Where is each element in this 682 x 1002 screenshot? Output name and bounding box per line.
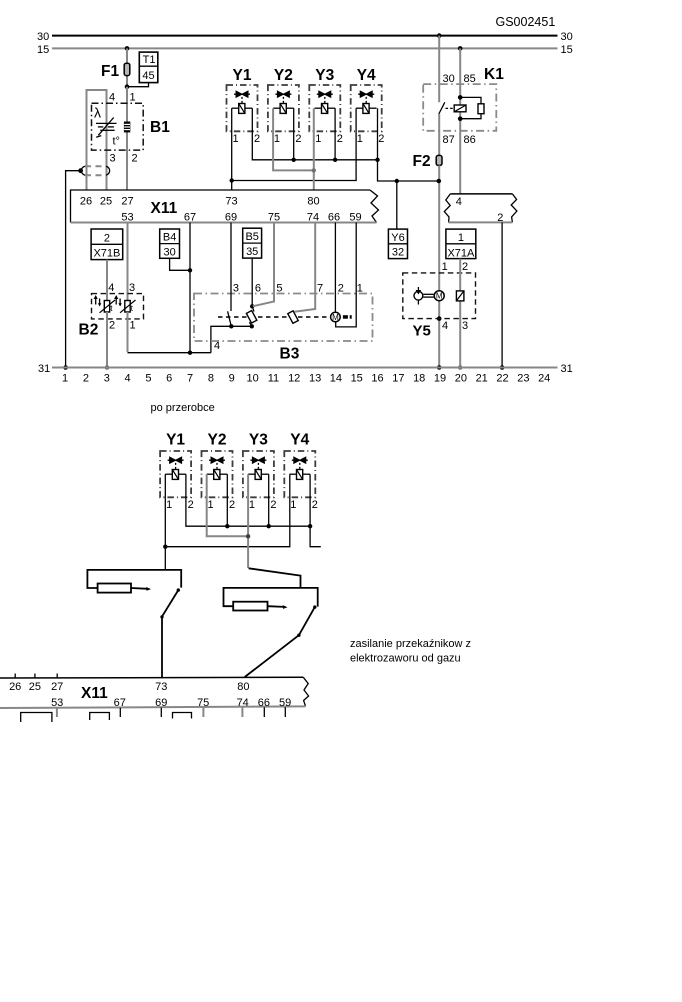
svg-text:1: 1 <box>274 133 280 145</box>
svg-text:6: 6 <box>166 373 172 385</box>
svg-text:1: 1 <box>208 499 214 511</box>
svg-text:X11: X11 <box>151 200 178 217</box>
svg-text:F1: F1 <box>101 63 119 80</box>
svg-text:80: 80 <box>307 196 319 208</box>
svg-text:1: 1 <box>315 133 321 145</box>
svg-text:t°: t° <box>113 136 120 148</box>
svg-text:B5: B5 <box>245 231 258 243</box>
svg-text:30: 30 <box>163 246 175 258</box>
svg-text:Y1: Y1 <box>233 67 252 84</box>
svg-text:67: 67 <box>184 212 196 224</box>
svg-text:2: 2 <box>229 499 235 511</box>
svg-text:Y1: Y1 <box>166 432 185 449</box>
svg-text:45: 45 <box>142 70 154 82</box>
svg-text:8: 8 <box>208 373 214 385</box>
svg-text:9: 9 <box>229 373 235 385</box>
svg-text:26: 26 <box>9 681 21 693</box>
svg-text:19: 19 <box>434 373 446 385</box>
svg-text:3: 3 <box>462 320 468 332</box>
svg-text:17: 17 <box>392 373 404 385</box>
svg-text:11: 11 <box>268 373 279 385</box>
svg-text:elektrozaworu od gazu: elektrozaworu od gazu <box>350 653 461 665</box>
svg-text:1: 1 <box>458 232 464 244</box>
svg-text:27: 27 <box>51 681 63 693</box>
svg-text:B3: B3 <box>280 346 300 363</box>
svg-text:16: 16 <box>371 373 383 385</box>
svg-text:2: 2 <box>497 212 503 224</box>
svg-text:12: 12 <box>288 373 300 385</box>
svg-text:2: 2 <box>338 283 344 295</box>
svg-text:75: 75 <box>197 697 209 709</box>
svg-text:2: 2 <box>295 133 301 145</box>
svg-text:27: 27 <box>121 196 133 208</box>
svg-text:λ: λ <box>94 105 101 121</box>
svg-text:4: 4 <box>109 92 115 104</box>
svg-text:2: 2 <box>83 373 89 385</box>
svg-text:59: 59 <box>349 212 361 224</box>
svg-text:23: 23 <box>517 373 529 385</box>
svg-text:T1: T1 <box>143 54 156 66</box>
svg-text:B1: B1 <box>150 119 170 136</box>
svg-text:5: 5 <box>276 283 282 295</box>
svg-text:3: 3 <box>110 153 116 165</box>
svg-text:35: 35 <box>246 246 258 258</box>
svg-text:1: 1 <box>233 133 239 145</box>
svg-text:2: 2 <box>109 320 115 332</box>
svg-text:4: 4 <box>456 196 462 208</box>
svg-text:Y2: Y2 <box>274 67 293 84</box>
svg-text:Y4: Y4 <box>290 432 309 449</box>
svg-text:4: 4 <box>442 320 448 332</box>
svg-text:30: 30 <box>37 31 49 43</box>
svg-text:24: 24 <box>538 373 550 385</box>
svg-text:53: 53 <box>51 697 63 709</box>
svg-text:66: 66 <box>328 212 340 224</box>
svg-text:15: 15 <box>561 44 573 56</box>
svg-text:30: 30 <box>443 73 455 85</box>
svg-text:1: 1 <box>249 499 255 511</box>
svg-text:73: 73 <box>225 196 237 208</box>
svg-text:67: 67 <box>114 697 126 709</box>
svg-text:M: M <box>436 292 443 301</box>
svg-text:1: 1 <box>62 373 68 385</box>
svg-text:21: 21 <box>476 373 488 385</box>
svg-text:2: 2 <box>270 499 276 511</box>
svg-text:K1: K1 <box>484 66 504 83</box>
svg-text:Y3: Y3 <box>249 432 268 449</box>
svg-text:X71A: X71A <box>447 247 475 259</box>
svg-text:18: 18 <box>413 373 425 385</box>
svg-text:1: 1 <box>357 283 363 295</box>
svg-text:14: 14 <box>330 373 342 385</box>
svg-text:15: 15 <box>37 44 49 56</box>
svg-text:73: 73 <box>155 681 167 693</box>
svg-text:86: 86 <box>464 134 476 146</box>
svg-text:31: 31 <box>38 363 50 375</box>
svg-text:80: 80 <box>237 681 249 693</box>
svg-text:2: 2 <box>312 499 318 511</box>
svg-text:1: 1 <box>130 92 136 104</box>
svg-text:1: 1 <box>442 261 448 273</box>
svg-text:10: 10 <box>246 373 258 385</box>
svg-text:1: 1 <box>290 499 296 511</box>
svg-text:4: 4 <box>108 282 114 294</box>
svg-text:15: 15 <box>351 373 363 385</box>
svg-text:2: 2 <box>188 499 194 511</box>
svg-text:Y2: Y2 <box>208 432 227 449</box>
svg-text:F2: F2 <box>413 153 431 170</box>
svg-text:53: 53 <box>121 212 133 224</box>
svg-text:po przerobce: po przerobce <box>151 402 215 414</box>
svg-text:2: 2 <box>462 261 468 273</box>
svg-text:2: 2 <box>337 133 343 145</box>
svg-text:25: 25 <box>29 681 41 693</box>
svg-text:Y6: Y6 <box>391 232 404 244</box>
svg-text:Y5: Y5 <box>413 323 431 340</box>
svg-text:30: 30 <box>561 31 573 43</box>
svg-text:X71B: X71B <box>93 248 120 260</box>
svg-text:zasilanie przekaźnikow z: zasilanie przekaźnikow z <box>350 638 471 650</box>
svg-text:32: 32 <box>392 247 404 259</box>
svg-text:26: 26 <box>80 196 92 208</box>
svg-text:75: 75 <box>268 212 280 224</box>
svg-text:Y3: Y3 <box>315 67 334 84</box>
svg-text:69: 69 <box>155 697 167 709</box>
svg-text:1: 1 <box>130 320 136 332</box>
svg-text:7: 7 <box>187 373 193 385</box>
svg-text:87: 87 <box>443 134 455 146</box>
svg-text:5: 5 <box>145 373 151 385</box>
svg-text:3: 3 <box>104 373 110 385</box>
svg-text:20: 20 <box>455 373 467 385</box>
svg-text:GS002451: GS002451 <box>496 15 556 29</box>
svg-text:69: 69 <box>225 212 237 224</box>
svg-text:85: 85 <box>464 73 476 85</box>
svg-text:1: 1 <box>357 133 363 145</box>
svg-text:7: 7 <box>317 283 323 295</box>
svg-text:25: 25 <box>100 196 112 208</box>
svg-text:13: 13 <box>309 373 321 385</box>
svg-text:M: M <box>332 313 339 322</box>
svg-text:3: 3 <box>233 283 239 295</box>
svg-text:X11: X11 <box>81 685 108 702</box>
svg-text:3: 3 <box>129 282 135 294</box>
svg-text:Y4: Y4 <box>357 67 376 84</box>
svg-text:B4: B4 <box>163 232 176 244</box>
svg-text:4: 4 <box>125 373 131 385</box>
svg-text:B2: B2 <box>79 322 99 339</box>
svg-text:2: 2 <box>378 133 384 145</box>
svg-text:6: 6 <box>255 283 261 295</box>
svg-text:31: 31 <box>561 363 573 375</box>
svg-text:74: 74 <box>307 212 319 224</box>
svg-text:22: 22 <box>496 373 508 385</box>
svg-text:2: 2 <box>104 232 110 244</box>
svg-text:1: 1 <box>166 499 172 511</box>
svg-text:2: 2 <box>254 133 260 145</box>
svg-text:2: 2 <box>132 153 138 165</box>
